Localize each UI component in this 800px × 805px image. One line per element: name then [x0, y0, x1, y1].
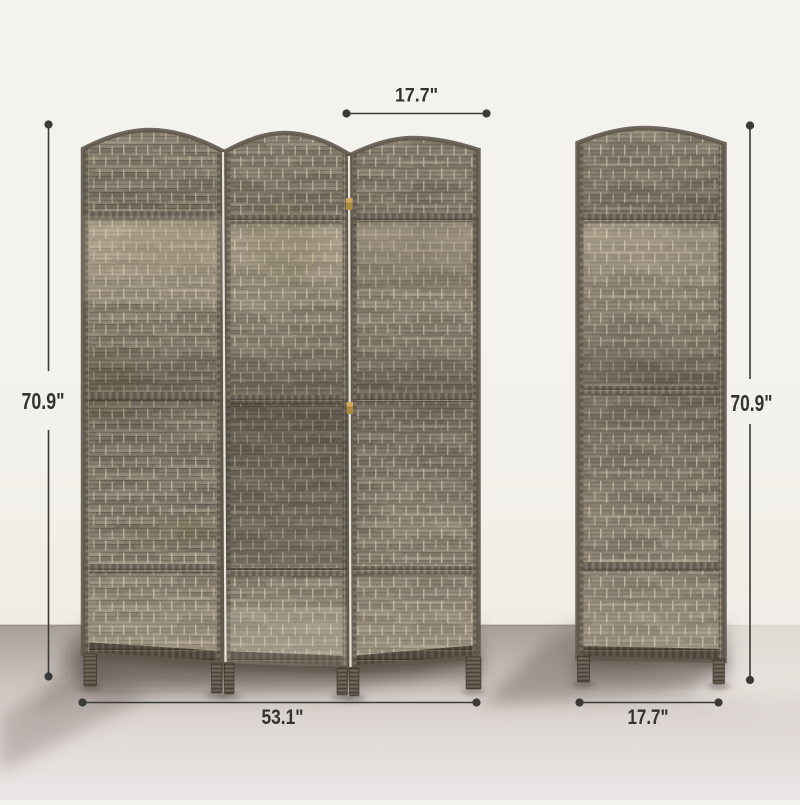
svg-text:17.7": 17.7": [395, 85, 438, 107]
svg-text:70.9": 70.9": [22, 388, 65, 414]
svg-text:17.7": 17.7": [628, 705, 669, 729]
svg-text:53.1": 53.1": [262, 705, 304, 729]
svg-text:70.9": 70.9": [731, 390, 773, 416]
